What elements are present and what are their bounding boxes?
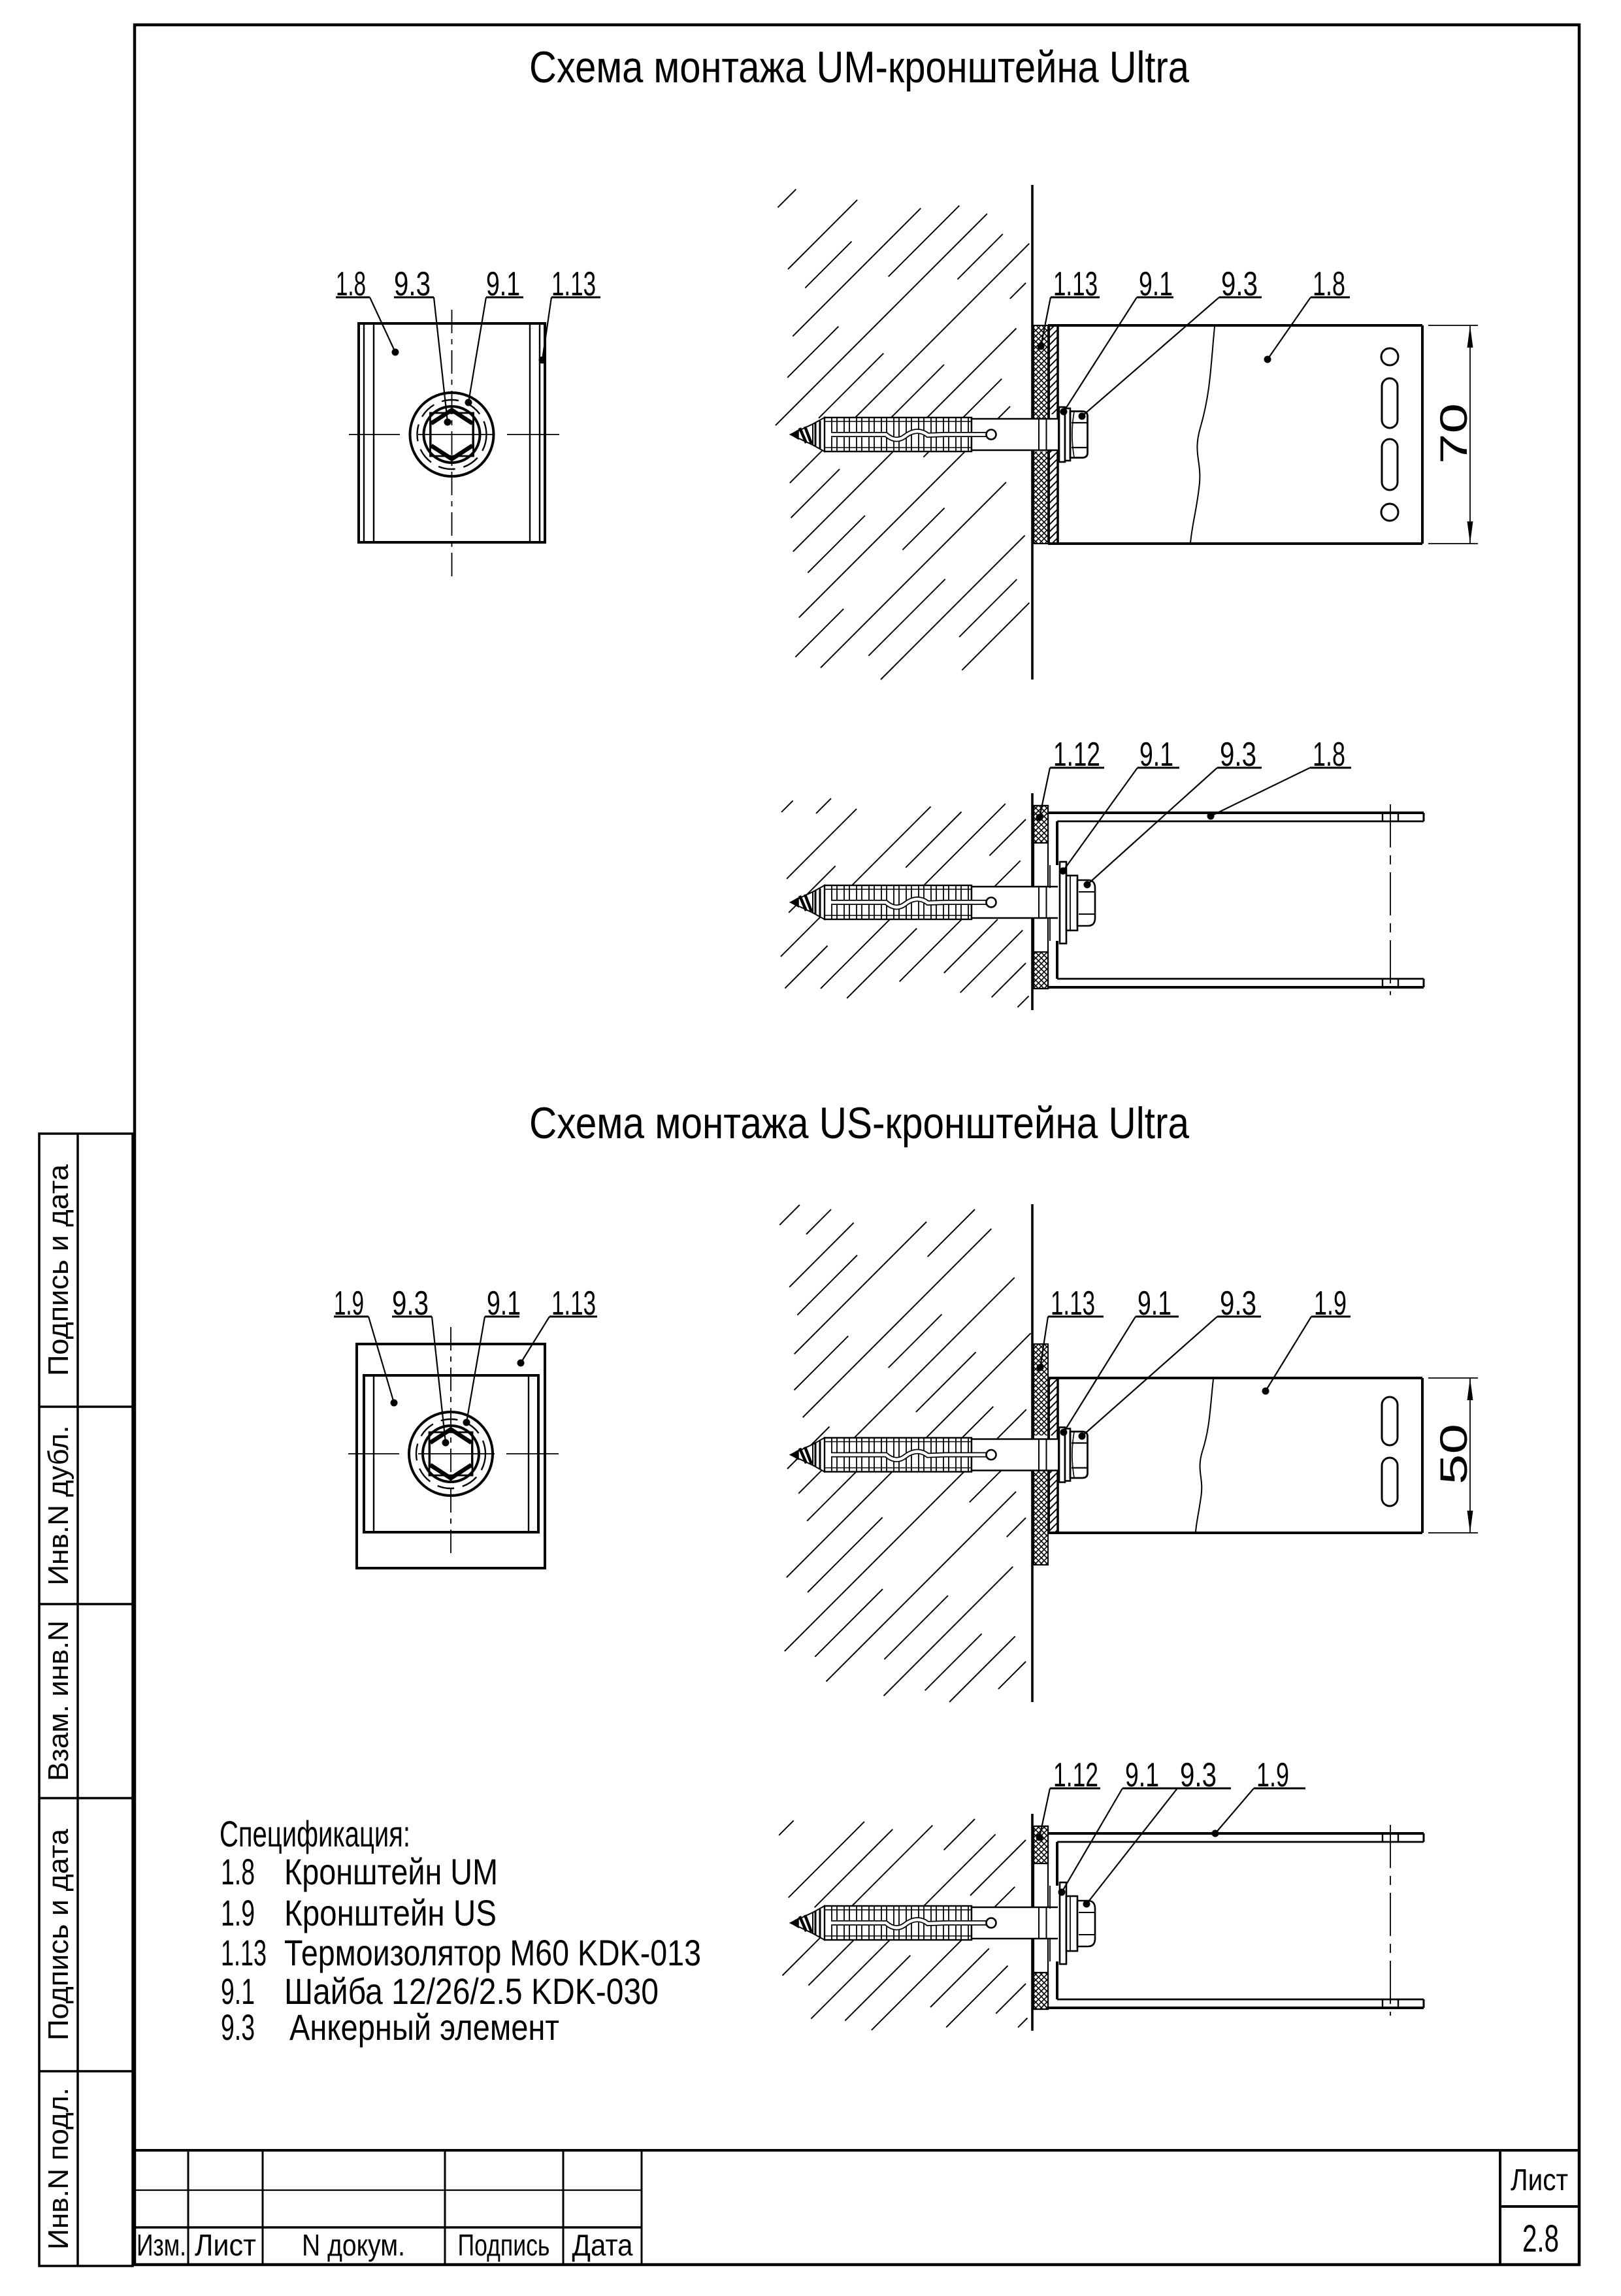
svg-text:Кронштейн US: Кронштейн US <box>284 1892 497 1933</box>
svg-text:Инв.N подл.: Инв.N подл. <box>42 2088 74 2250</box>
svg-text:70: 70 <box>1433 403 1475 464</box>
svg-text:Изм.: Изм. <box>137 2228 186 2262</box>
svg-text:Анкерный элемент: Анкерный элемент <box>289 2007 559 2048</box>
svg-text:Спецификация:: Спецификация: <box>220 1813 410 1854</box>
svg-text:Термоизолятор М60 KDK-013: Термоизолятор М60 KDK-013 <box>284 1932 701 1973</box>
svg-text:Дата: Дата <box>572 2228 633 2262</box>
svg-text:Лист: Лист <box>1511 2163 1568 2197</box>
svg-text:2.8: 2.8 <box>1522 2218 1559 2260</box>
svg-text:Подпись и дата: Подпись и дата <box>42 1828 74 2041</box>
svg-text:1.8: 1.8 <box>221 1851 255 1892</box>
svg-text:Лист: Лист <box>195 2228 256 2262</box>
svg-text:1.9: 1.9 <box>221 1892 255 1933</box>
svg-text:Взам. инв.N: Взам. инв.N <box>42 1620 74 1781</box>
svg-text:Инв.N дубл.: Инв.N дубл. <box>42 1426 74 1586</box>
svg-text:Кронштейн UM: Кронштейн UM <box>284 1851 498 1892</box>
svg-text:Подпись: Подпись <box>458 2228 550 2262</box>
svg-text:Схема монтажа US-кронштейна Ul: Схема монтажа US-кронштейна Ultra <box>529 1098 1189 1148</box>
svg-text:Подпись и дата: Подпись и дата <box>42 1164 74 1376</box>
svg-text:9.3: 9.3 <box>221 2007 255 2048</box>
svg-text:9.1: 9.1 <box>221 1971 255 2012</box>
svg-text:Шайба 12/26/2.5 KDK-030: Шайба 12/26/2.5 KDK-030 <box>284 1971 659 2012</box>
svg-text:50: 50 <box>1433 1424 1475 1484</box>
svg-text:1.13: 1.13 <box>221 1932 267 1973</box>
svg-text:N докум.: N докум. <box>302 2228 405 2262</box>
svg-text:Схема монтажа UM-кронштейна Ul: Схема монтажа UM-кронштейна Ultra <box>529 42 1189 92</box>
